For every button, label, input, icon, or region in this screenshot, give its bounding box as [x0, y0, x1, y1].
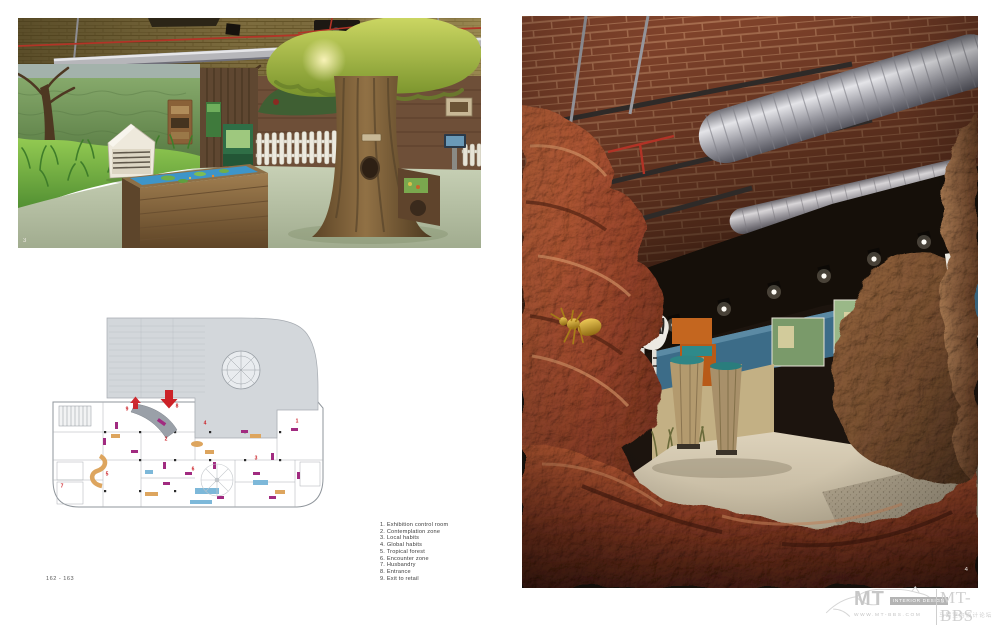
- figure-exhibition-tree-room: 3: [18, 18, 481, 248]
- tree-kiosk: [398, 168, 440, 226]
- pond-table: [122, 164, 268, 248]
- legend-item: 7. Husbandry: [380, 562, 448, 569]
- legend-item: 8. Entrance: [380, 569, 448, 576]
- plan-zone-number: 4: [204, 422, 207, 427]
- figure-number: 4: [965, 567, 968, 573]
- legend-item: 5. Tropical forest: [380, 549, 448, 556]
- terrarium-box: [223, 124, 253, 166]
- plan-legend: 1. Exhibition control room 2. Contemplat…: [380, 522, 448, 582]
- watermark-url: WWW.MT-BBS.COM: [854, 613, 921, 618]
- tree-sign: [362, 134, 381, 141]
- spiral-stair: [222, 351, 260, 389]
- floor-plan-drawing: [45, 310, 330, 515]
- plan-zone-number: 2: [165, 438, 168, 443]
- figure-number: 3: [23, 238, 26, 244]
- plan-zone-number: 7: [61, 485, 64, 490]
- legend-item: 6. Encounter zone: [380, 556, 448, 563]
- legend-item: 4. Global habits: [380, 542, 448, 549]
- plan-round-feature: [201, 464, 233, 496]
- plan-stairs: [59, 406, 91, 426]
- legend-item: 2. Contemplation zone: [380, 529, 448, 536]
- mt-bbs-watermark: MT INTERIOR DESIGN WWW.MT-BBS.COM MT-BBS…: [820, 584, 998, 628]
- page-number: 162 - 163: [46, 576, 74, 582]
- floor-plan: 1 2 3 4 5 6 7 8 9: [45, 310, 330, 515]
- legend-item: 9. Exit to retail: [380, 576, 448, 583]
- canopy-light: [302, 38, 346, 82]
- plan-zone-number: 5: [106, 473, 109, 478]
- plan-zone-number: 9: [126, 408, 129, 413]
- right-photo-art: [522, 16, 978, 588]
- ceiling-speaker: [225, 23, 240, 35]
- ceiling-beam: [148, 18, 220, 27]
- plan-zone-number: 8: [176, 405, 179, 410]
- tree-hole: [361, 157, 379, 179]
- plan-zone-number: 1: [296, 420, 299, 425]
- picket-fence: [256, 131, 338, 166]
- watermark-brand: MT-BBS: [936, 589, 998, 625]
- figure-rock-exhibit: 4: [522, 16, 978, 588]
- legend-item: 1. Exhibition control room: [380, 522, 448, 529]
- plan-zone-number: 3: [255, 457, 258, 462]
- legend-item: 3. Local habits: [380, 535, 448, 542]
- book-page: 3: [0, 0, 1000, 630]
- left-photo-art: [18, 18, 481, 248]
- plan-zone-number: 6: [192, 468, 195, 473]
- watermark-mt: MT: [854, 589, 885, 609]
- watermark-chinese: 马蹄室内设计论坛: [939, 613, 993, 619]
